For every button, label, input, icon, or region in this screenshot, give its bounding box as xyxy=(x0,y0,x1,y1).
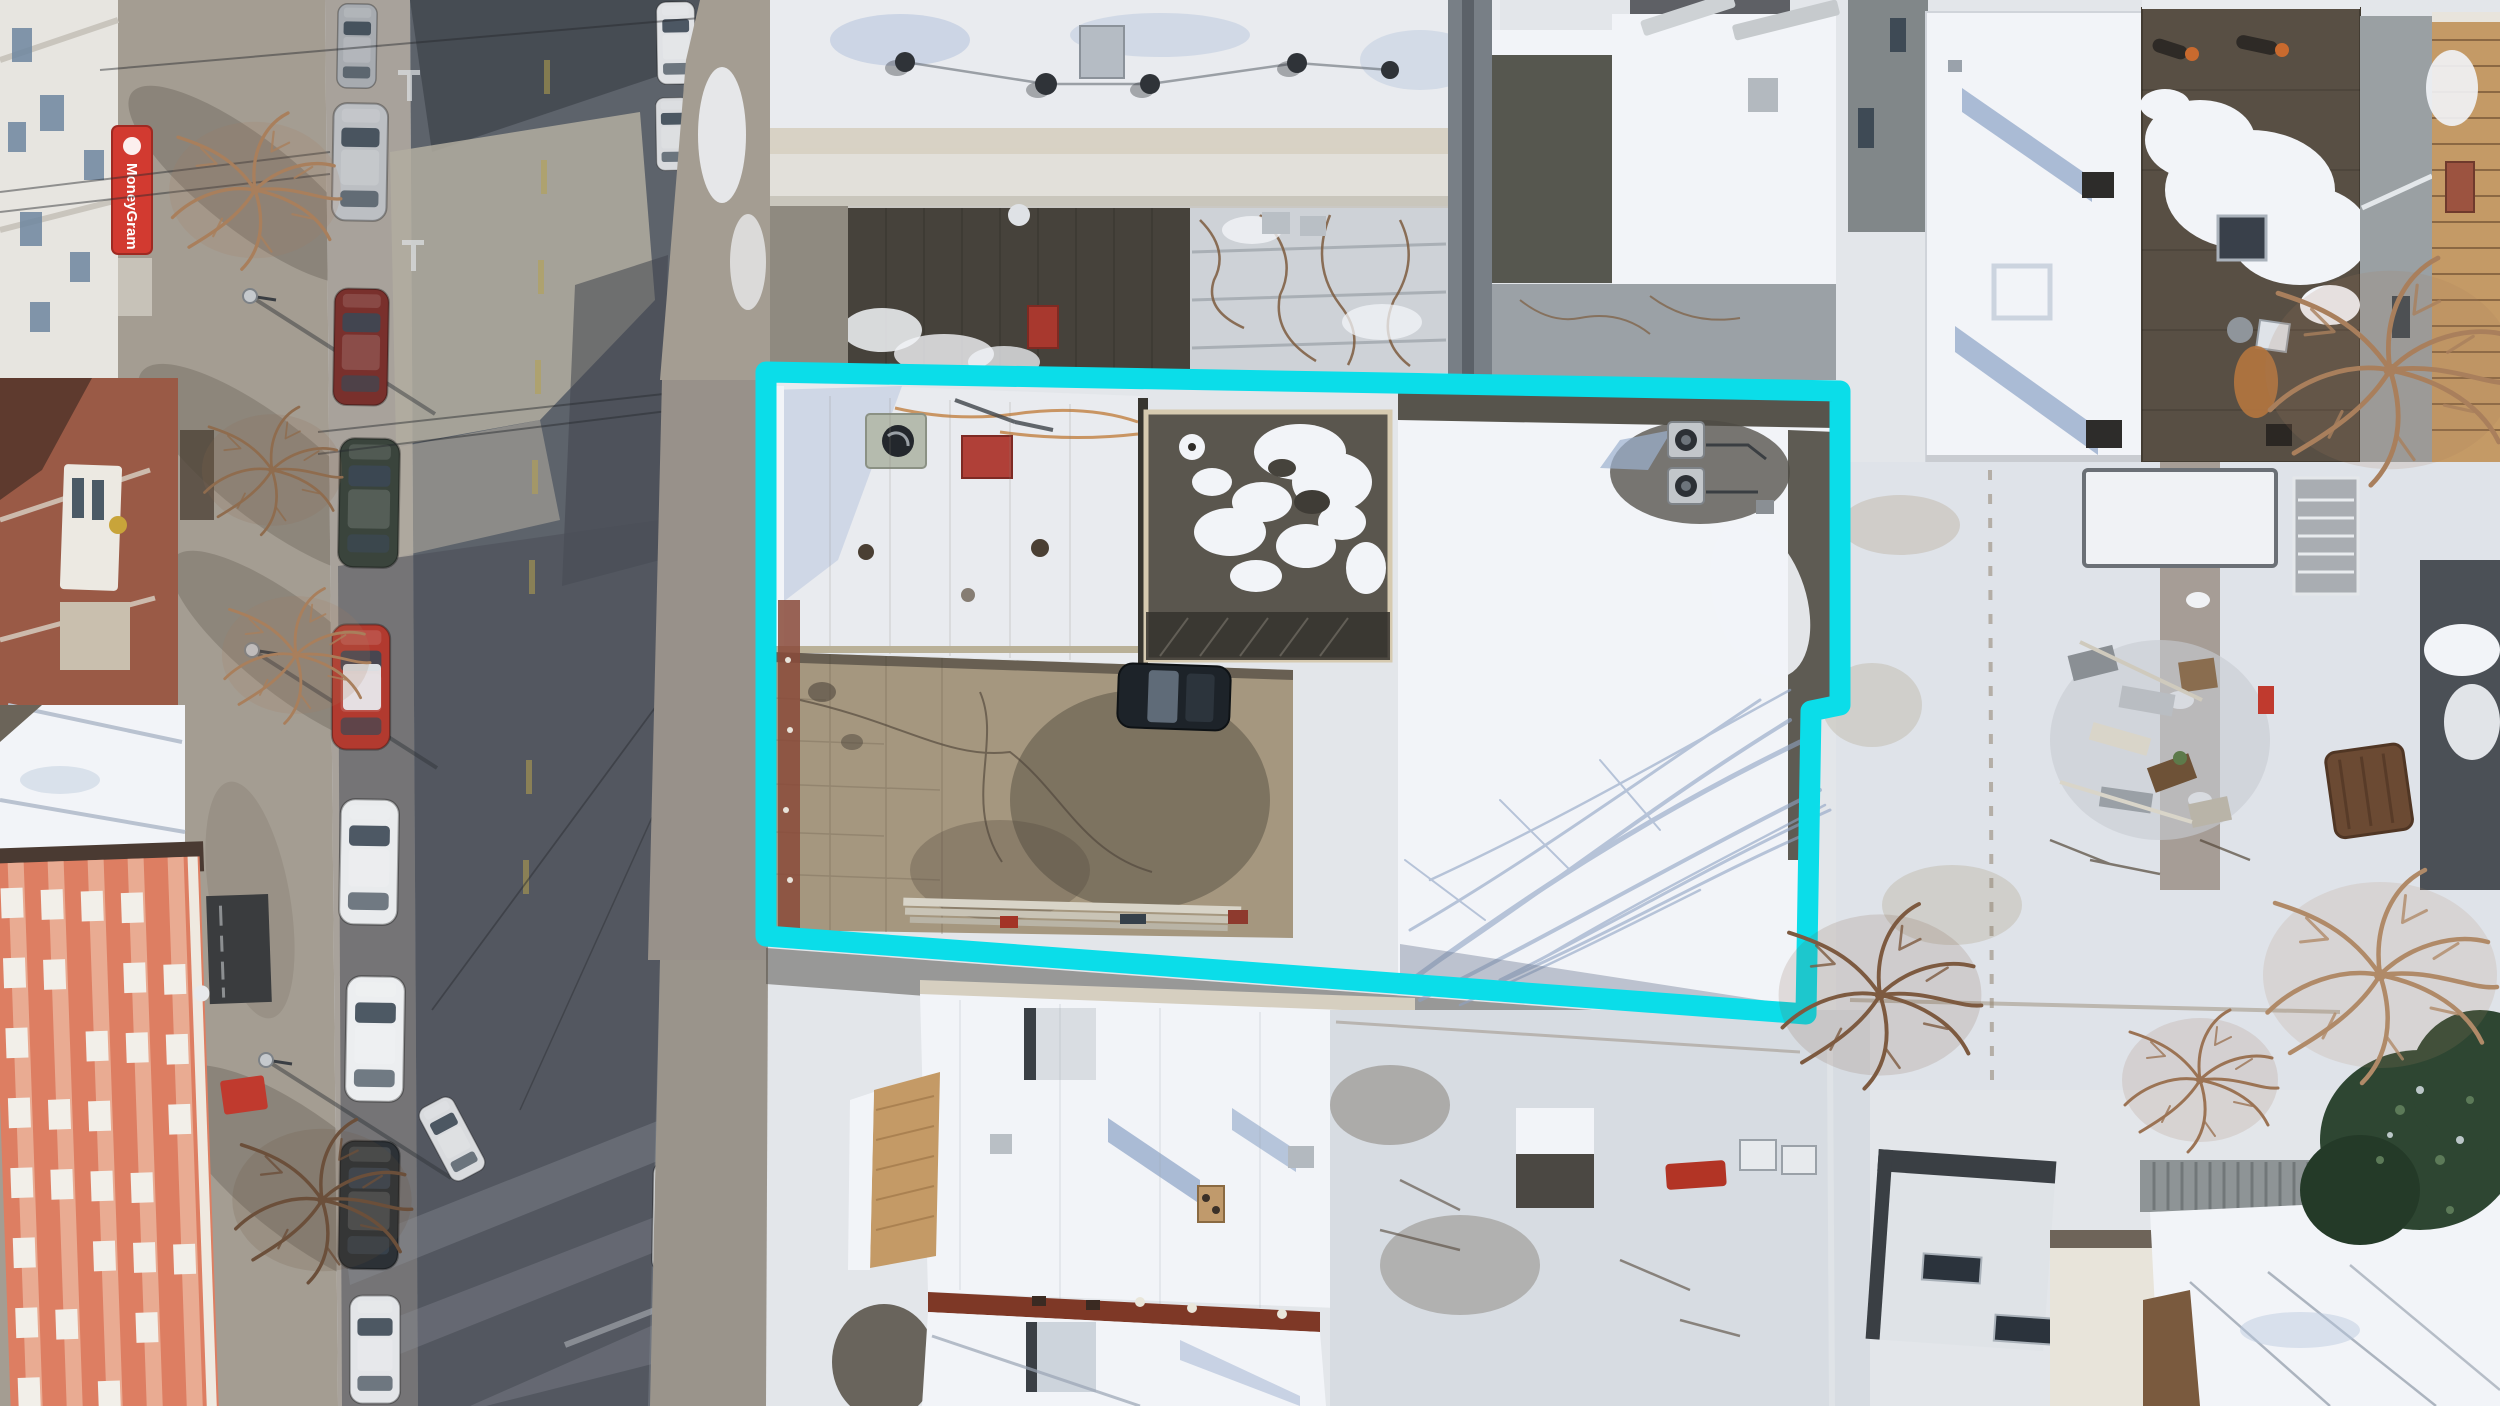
rowhouse-roof-snow xyxy=(1926,12,2142,464)
satellite-dish-icon xyxy=(1008,204,1030,226)
red-roof-structure xyxy=(962,436,1012,478)
tar-roof xyxy=(770,204,1190,378)
rear-driveway xyxy=(2420,560,2500,890)
parked-car xyxy=(338,438,400,568)
red-object xyxy=(2258,686,2274,714)
red-roof-box xyxy=(1028,306,1058,348)
commercial-roof xyxy=(770,0,1500,208)
lot-yard xyxy=(772,652,1293,938)
skylight xyxy=(1994,1315,2054,1345)
mid-backyards xyxy=(1330,1010,1870,1406)
bush xyxy=(109,516,127,534)
aerial-photo: MoneyGram xyxy=(0,0,2500,1406)
couch xyxy=(2325,743,2414,839)
brick-chimney xyxy=(1198,1186,1224,1222)
parked-car xyxy=(345,976,405,1102)
lot-roof-snowy xyxy=(1398,392,1836,1014)
alley-strip xyxy=(1448,0,1492,380)
framed-roof xyxy=(1866,1149,2065,1352)
chimney xyxy=(2082,172,2114,198)
brick-chimney xyxy=(2446,162,2474,212)
red-object xyxy=(1665,1160,1727,1190)
skylight xyxy=(1922,1253,1982,1283)
red-object xyxy=(1000,916,1018,928)
chimney xyxy=(2086,420,2122,448)
parked-car xyxy=(333,288,389,406)
aerial-photo-svg: MoneyGram xyxy=(0,0,2500,1406)
garage-roof xyxy=(2084,470,2276,566)
roof-hatch xyxy=(1080,26,1124,78)
lot-car xyxy=(1117,663,1231,731)
red-object xyxy=(1228,910,1248,924)
chimney-cap-orange xyxy=(2275,43,2289,57)
shingle-roof xyxy=(848,1072,940,1270)
hvac-unit xyxy=(866,414,926,468)
chimney-cap-orange xyxy=(2185,47,2199,61)
skylight xyxy=(2218,216,2266,260)
parked-car xyxy=(350,1296,400,1404)
lot-roof-dark xyxy=(1146,412,1390,660)
brown-roof-edge xyxy=(2143,1290,2200,1406)
red-mat xyxy=(220,1075,268,1115)
trellis-roof xyxy=(1190,208,1448,373)
lot-roof-white xyxy=(770,382,1140,664)
parked-car xyxy=(339,799,399,925)
porch-stairs xyxy=(2294,478,2358,594)
apartment-building-orange xyxy=(0,841,223,1406)
moneygram-logo xyxy=(123,137,141,155)
white-pole xyxy=(1830,1050,1832,1406)
brick-wall-strip xyxy=(778,600,800,936)
parked-car xyxy=(332,103,389,221)
